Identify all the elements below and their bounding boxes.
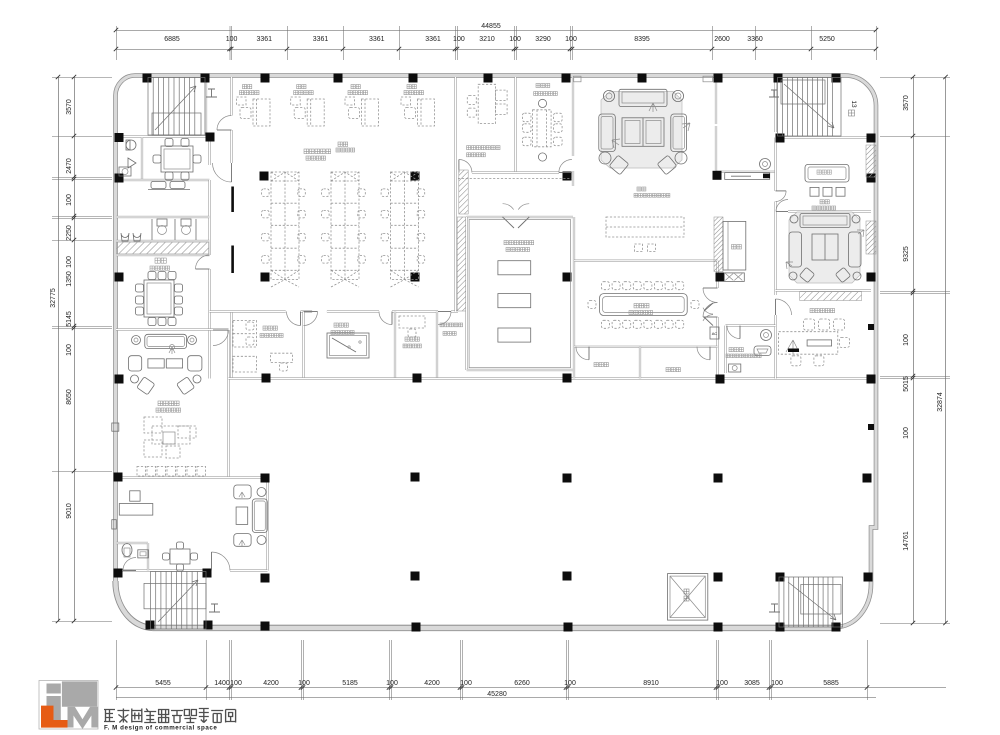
- svg-text:100: 100: [230, 680, 242, 687]
- svg-text:3290: 3290: [535, 36, 551, 43]
- svg-text:2250: 2250: [66, 225, 73, 241]
- svg-text:3570: 3570: [903, 95, 910, 111]
- svg-text:100: 100: [716, 680, 728, 687]
- svg-text:6885: 6885: [164, 36, 180, 43]
- svg-text:100: 100: [453, 36, 465, 43]
- svg-text:44855: 44855: [481, 23, 501, 30]
- svg-text:32874: 32874: [937, 392, 944, 412]
- svg-text:1400: 1400: [214, 680, 230, 687]
- svg-text:45280: 45280: [487, 691, 507, 698]
- svg-text:4200: 4200: [424, 680, 440, 687]
- svg-text:100: 100: [903, 427, 910, 439]
- svg-text:3570: 3570: [66, 99, 73, 115]
- svg-text:3085: 3085: [744, 680, 760, 687]
- svg-text:8650: 8650: [66, 389, 73, 405]
- svg-text:100: 100: [226, 36, 238, 43]
- svg-text:F. M design of commercial spac: F. M design of commercial space: [104, 725, 217, 732]
- svg-text:100: 100: [509, 36, 521, 43]
- svg-text:4200: 4200: [263, 680, 279, 687]
- svg-text:5885: 5885: [823, 680, 839, 687]
- svg-text:100: 100: [66, 256, 73, 268]
- svg-text:8395: 8395: [634, 36, 650, 43]
- svg-text:100: 100: [771, 680, 783, 687]
- svg-text:100: 100: [564, 680, 576, 687]
- svg-text:100: 100: [66, 344, 73, 356]
- svg-text:AC: AC: [712, 331, 718, 336]
- svg-text:14761: 14761: [903, 531, 910, 551]
- svg-text:5250: 5250: [819, 36, 835, 43]
- svg-text:6260: 6260: [514, 680, 530, 687]
- svg-text:3210: 3210: [479, 36, 495, 43]
- svg-text:5015: 5015: [903, 376, 910, 392]
- svg-text:9010: 9010: [66, 503, 73, 519]
- svg-text:2470: 2470: [66, 158, 73, 174]
- svg-text:3361: 3361: [425, 36, 441, 43]
- svg-text:3360: 3360: [747, 36, 763, 43]
- svg-text:100: 100: [903, 334, 910, 346]
- svg-text:2600: 2600: [714, 36, 730, 43]
- svg-text:100: 100: [565, 36, 577, 43]
- svg-text:3361: 3361: [369, 36, 385, 43]
- svg-text:32775: 32775: [50, 288, 57, 308]
- svg-text:100: 100: [460, 680, 472, 687]
- svg-text:5145: 5145: [66, 311, 73, 327]
- svg-text:8910: 8910: [643, 680, 659, 687]
- svg-text:100: 100: [66, 194, 73, 206]
- svg-text:5185: 5185: [342, 680, 358, 687]
- svg-text:3361: 3361: [257, 36, 273, 43]
- svg-text:1350: 1350: [66, 271, 73, 287]
- svg-text:100: 100: [298, 680, 310, 687]
- svg-text:3361: 3361: [313, 36, 329, 43]
- svg-text:5455: 5455: [155, 680, 171, 687]
- svg-text:9325: 9325: [903, 246, 910, 262]
- svg-text:13: 13: [850, 100, 857, 108]
- svg-text:100: 100: [386, 680, 398, 687]
